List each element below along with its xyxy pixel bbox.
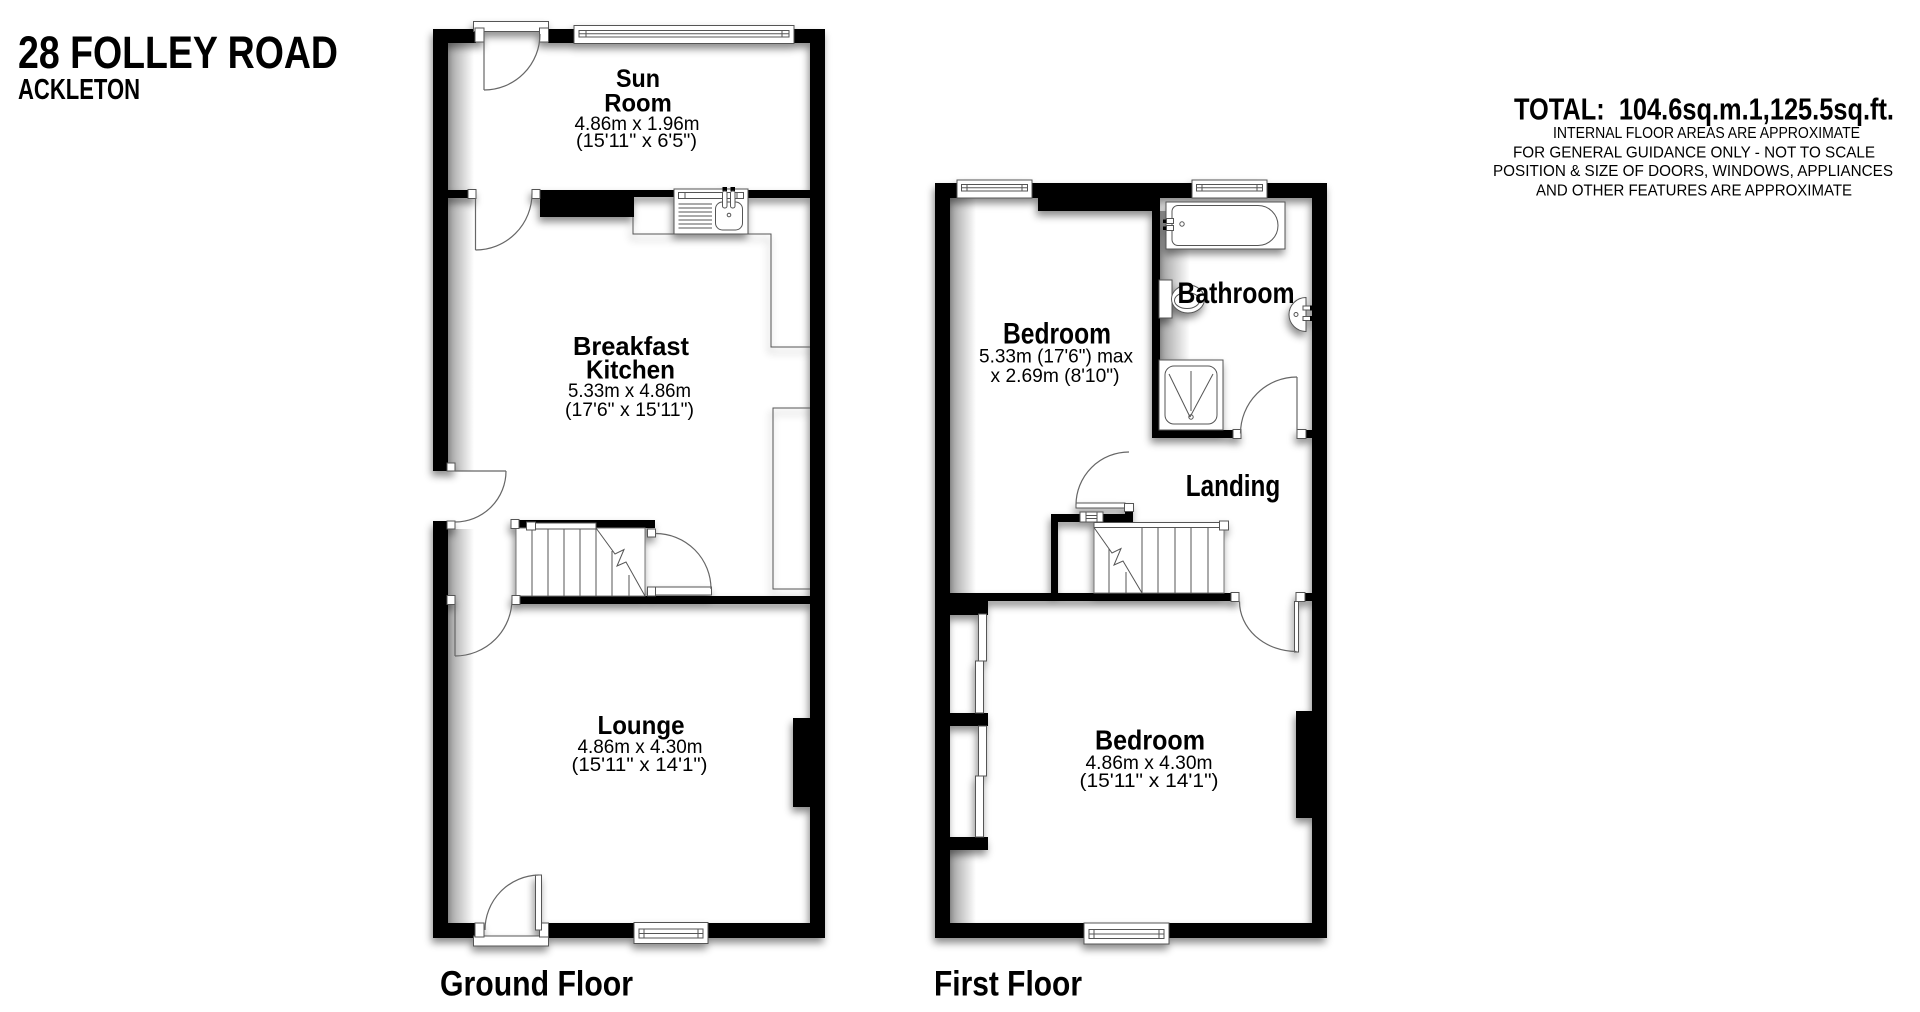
svg-text:(17'6" x 15'11"): (17'6" x 15'11") bbox=[565, 400, 694, 421]
svg-text:5.33m (17'6") max: 5.33m (17'6") max bbox=[979, 347, 1133, 368]
svg-text:5.33m x 4.86m: 5.33m x 4.86m bbox=[568, 381, 691, 402]
svg-text:Kitchen: Kitchen bbox=[586, 355, 675, 385]
svg-text:Ground Floor: Ground Floor bbox=[440, 965, 633, 1004]
svg-text:(15'11" x 14'1"): (15'11" x 14'1") bbox=[1080, 771, 1219, 792]
svg-text:x 2.69m (8'10"): x 2.69m (8'10") bbox=[991, 366, 1120, 387]
svg-text:TOTAL: 104.6sq.m.1,125.5sq.ft: TOTAL: 104.6sq.m.1,125.5sq.ft. bbox=[1514, 92, 1894, 127]
svg-text:Lounge: Lounge bbox=[598, 710, 685, 740]
svg-text:POSITION & SIZE OF DOORS, WIND: POSITION & SIZE OF DOORS, WINDOWS, APPLI… bbox=[1493, 163, 1893, 180]
svg-text:28 FOLLEY ROAD: 28 FOLLEY ROAD bbox=[18, 27, 338, 78]
svg-text:First Floor: First Floor bbox=[934, 965, 1082, 1004]
svg-text:Bathroom: Bathroom bbox=[1178, 277, 1295, 310]
svg-text:Landing: Landing bbox=[1186, 468, 1281, 503]
svg-text:(15'11" x 14'1"): (15'11" x 14'1") bbox=[572, 755, 708, 776]
svg-text:Bedroom: Bedroom bbox=[1095, 725, 1205, 756]
svg-text:(15'11" x 6'5"): (15'11" x 6'5") bbox=[576, 131, 697, 152]
svg-text:FOR GENERAL GUIDANCE ONLY - NO: FOR GENERAL GUIDANCE ONLY - NOT TO SCALE bbox=[1513, 145, 1875, 162]
svg-text:AND OTHER FEATURES ARE APPROXI: AND OTHER FEATURES ARE APPROXIMATE bbox=[1536, 183, 1852, 200]
svg-text:INTERNAL FLOOR AREAS ARE APPRO: INTERNAL FLOOR AREAS ARE APPROXIMATE bbox=[1553, 125, 1860, 142]
svg-text:ACKLETON: ACKLETON bbox=[18, 74, 140, 106]
